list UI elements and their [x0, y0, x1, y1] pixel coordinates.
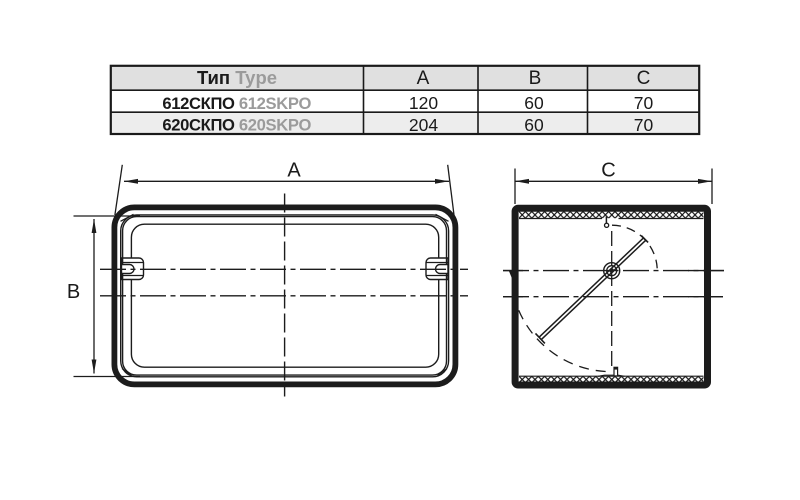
- svg-text:B: B: [529, 68, 542, 89]
- svg-text:60: 60: [524, 93, 544, 113]
- svg-text:Тип Type: Тип Type: [197, 67, 277, 88]
- svg-text:A: A: [287, 160, 301, 182]
- svg-text:C: C: [637, 68, 651, 89]
- svg-text:70: 70: [634, 115, 654, 135]
- svg-text:C: C: [601, 160, 615, 182]
- svg-text:70: 70: [634, 93, 654, 113]
- svg-text:B: B: [67, 281, 80, 303]
- svg-text:204: 204: [409, 115, 438, 135]
- svg-text:612СКПО 612SKPO: 612СКПО 612SKPO: [162, 94, 311, 113]
- svg-text:620СКПО 620SKPO: 620СКПО 620SKPO: [162, 116, 311, 135]
- svg-text:60: 60: [524, 115, 544, 135]
- svg-text:A: A: [417, 68, 430, 89]
- svg-text:120: 120: [409, 93, 438, 113]
